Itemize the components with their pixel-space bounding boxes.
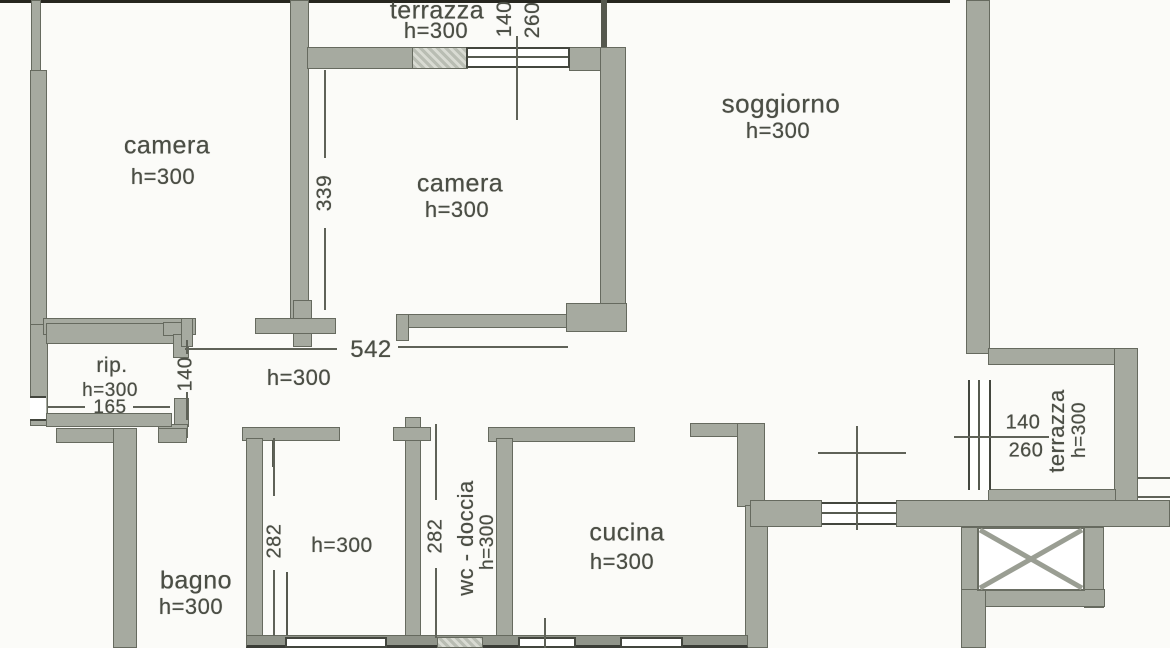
dim-tick-south-window-v bbox=[856, 426, 858, 530]
window-bottom-1 bbox=[285, 637, 387, 648]
wall-bagno-right bbox=[246, 438, 263, 640]
window-bottom-3 bbox=[518, 637, 576, 648]
label-camera-mid: camera bbox=[417, 170, 503, 199]
window-bottom-4 bbox=[620, 637, 683, 648]
wall-left-outer-top bbox=[31, 0, 41, 76]
wall-terrazza-right-edge bbox=[601, 0, 607, 49]
wall-terrazza-right-top bbox=[988, 348, 1116, 365]
wall-soggiorno-right bbox=[966, 0, 990, 354]
dim-tick-bottom-window bbox=[544, 618, 546, 648]
dim-label-165: 165 bbox=[93, 397, 126, 419]
dim-line-165-right bbox=[133, 406, 170, 408]
wall-south-right-b bbox=[896, 500, 1170, 527]
wall-corridor-cross-h bbox=[255, 318, 336, 334]
label-corridoio-h: h=300 bbox=[267, 365, 331, 391]
wall-bagno-left bbox=[113, 428, 137, 648]
dim-line-542-right bbox=[398, 346, 568, 348]
wall-terrazza-right-outer bbox=[1114, 348, 1138, 507]
dim-line-right-edge-b bbox=[1138, 496, 1170, 498]
label-terrazza-top-h: h=300 bbox=[404, 18, 468, 44]
wall-camera-mid-bottom bbox=[396, 314, 568, 328]
dim-label-top-140: 140 bbox=[493, 1, 517, 38]
window-terrazza-right bbox=[968, 380, 991, 490]
label-wc-doccia: wc - doccia bbox=[453, 480, 479, 596]
wall-terrazza-bottom-a bbox=[307, 47, 413, 69]
floor-plan: terrazza h=300 140 260 camera h=300 came… bbox=[0, 0, 1170, 648]
dim-label-top-260: 260 bbox=[521, 2, 545, 39]
wall-terrazza-bottom-hatch bbox=[412, 47, 468, 69]
window-rip-left bbox=[30, 396, 46, 421]
label-cameretta-h: h=300 bbox=[311, 534, 372, 558]
dim-line-140-upper bbox=[186, 340, 188, 354]
dim-line-282-wc-lower bbox=[435, 568, 437, 638]
wall-cucina-right-upper bbox=[737, 423, 765, 507]
label-camera-left: camera bbox=[124, 132, 210, 161]
window-bottom-2 bbox=[437, 637, 483, 648]
wall-below-shaft bbox=[961, 589, 986, 648]
door-leaf-bagno bbox=[286, 572, 288, 640]
dim-label-right-140: 140 bbox=[1006, 412, 1041, 435]
label-terrazza-right: terrazza bbox=[1044, 389, 1070, 472]
label-bagno: bagno bbox=[160, 567, 232, 596]
wall-south-right-a bbox=[750, 500, 822, 527]
dim-label-282-wc: 282 bbox=[425, 519, 448, 554]
window-terrazza-top bbox=[466, 47, 570, 68]
dim-line-542-left bbox=[185, 348, 337, 350]
dim-line-339-upper bbox=[324, 70, 326, 158]
elevator-shaft bbox=[977, 527, 1085, 591]
label-soggiorno: soggiorno bbox=[722, 89, 841, 120]
dim-line-339-lower bbox=[324, 228, 326, 310]
dim-label-339: 339 bbox=[313, 175, 337, 212]
wall-camera-mid-bottom-block bbox=[566, 303, 627, 332]
dim-label-corridoio-140: 140 bbox=[175, 357, 198, 392]
dim-fraction-line-right bbox=[1002, 436, 1049, 438]
label-bagno-h: h=300 bbox=[159, 594, 223, 620]
wall-shaft-bottom bbox=[974, 589, 1105, 607]
label-terrazza-right-h: h=300 bbox=[1069, 402, 1091, 458]
dim-label-right-260: 260 bbox=[1009, 440, 1044, 463]
dim-tick-south-window-h bbox=[818, 452, 906, 454]
label-cucina-h: h=300 bbox=[590, 549, 654, 575]
dim-line-140-lower bbox=[186, 392, 188, 420]
wall-bagno-top-b bbox=[158, 428, 187, 443]
dim-line-282-left-lower bbox=[273, 570, 275, 636]
label-cucina: cucina bbox=[589, 519, 664, 548]
label-soggiorno-h: h=300 bbox=[746, 118, 810, 144]
wall-camera-mid-right bbox=[600, 47, 626, 310]
label-rip: rip. bbox=[96, 354, 127, 378]
wall-shaft-left bbox=[961, 527, 978, 597]
dim-line-282-left-upper bbox=[273, 438, 275, 496]
dim-label-282-left: 282 bbox=[264, 524, 287, 559]
wall-rip-top bbox=[46, 323, 177, 344]
label-wc-doccia-h: h=300 bbox=[477, 514, 499, 570]
wall-wc-left-cross bbox=[393, 427, 431, 441]
label-camera-mid-h: h=300 bbox=[425, 197, 489, 223]
dim-line-right-window bbox=[954, 436, 1003, 438]
wall-wc-left bbox=[405, 417, 421, 640]
window-south-right bbox=[822, 502, 896, 525]
dim-line-top-window bbox=[516, 36, 518, 120]
wall-camera-mid-bottom-stub bbox=[396, 314, 409, 341]
dim-label-542: 542 bbox=[350, 336, 392, 364]
wall-left-outer bbox=[30, 70, 47, 326]
label-camera-left-h: h=300 bbox=[131, 164, 195, 190]
dim-line-165-left bbox=[48, 406, 85, 408]
dim-line-right-edge-a bbox=[1138, 477, 1170, 479]
dim-line-282-wc-upper bbox=[435, 424, 437, 500]
